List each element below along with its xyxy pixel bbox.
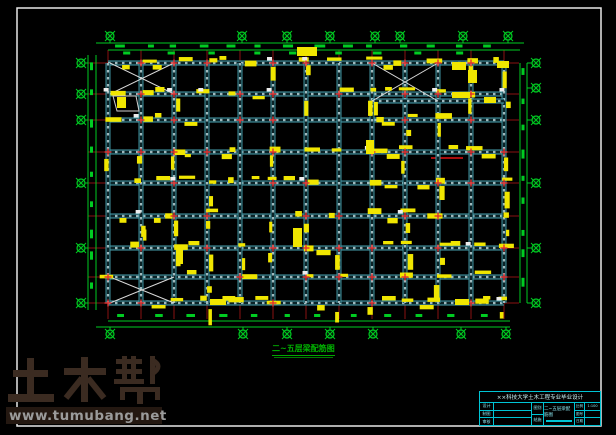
cad-drawing-viewport: 二~五层梁配筋图 www.tumubang.net ××科技大学土木工程专业毕业… xyxy=(0,0,616,435)
drawing-title: 二~五层梁配筋图 xyxy=(272,345,335,356)
title-block-body: 设计 制图 审核 图别 结施 二~五层梁配筋图 xyxy=(480,403,600,425)
cell-label: 制图 xyxy=(480,411,494,418)
cell-value xyxy=(494,411,531,418)
drawing-name-text: 二~五层梁配筋图 xyxy=(544,406,574,418)
cell-label: 结施 xyxy=(532,415,543,426)
cell-label: 图别 xyxy=(532,403,543,415)
cell-label: 审核 xyxy=(480,418,494,425)
cell-value xyxy=(494,418,531,425)
title-block-signatures: 设计 制图 审核 xyxy=(480,403,532,425)
title-block: ××科技大学土木工程专业毕业设计 设计 制图 审核 图别 结施 xyxy=(479,391,601,426)
cell-value xyxy=(494,403,531,410)
title-block-header: ××科技大学土木工程专业毕业设计 xyxy=(480,392,600,403)
cell-value: 1:100 xyxy=(585,403,600,410)
watermark-url: www.tumubang.net xyxy=(9,408,167,425)
title-block-drawing-type: 图别 结施 xyxy=(532,403,544,425)
cell-value xyxy=(585,411,600,418)
title-block-row: 比例 1:100 xyxy=(575,403,600,411)
title-block-row: 审核 xyxy=(480,418,531,425)
title-block-drawing-name: 二~五层梁配筋图 xyxy=(544,403,575,425)
cell-label: 图号 xyxy=(575,411,585,418)
cell-value xyxy=(585,418,600,425)
title-block-row: 设计 xyxy=(480,403,531,411)
title-block-meta: 比例 1:100 图号 日期 xyxy=(575,403,600,425)
cell-label: 比例 xyxy=(575,403,585,410)
underline-bar xyxy=(546,420,572,422)
watermark-logo xyxy=(6,352,166,408)
title-block-row: 日期 xyxy=(575,418,600,425)
cell-label: 设计 xyxy=(480,403,494,410)
title-block-row: 制图 xyxy=(480,411,531,419)
cell-label: 日期 xyxy=(575,418,585,425)
title-block-row: 图号 xyxy=(575,411,600,419)
